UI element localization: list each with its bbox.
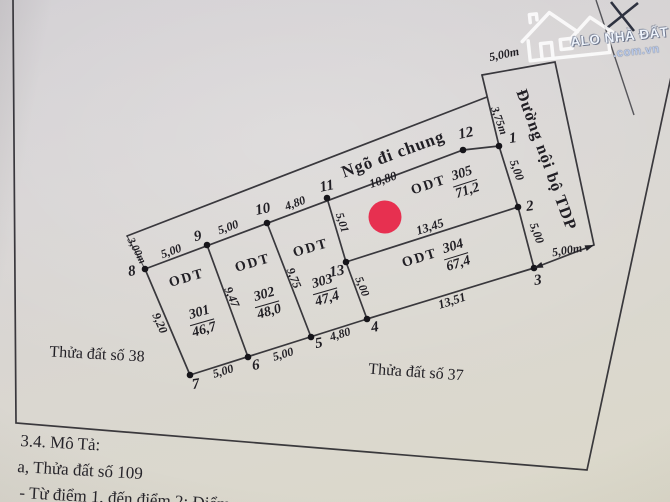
point-12-label: 12	[457, 125, 475, 143]
point-10-label: 10	[254, 201, 272, 219]
point-4-label: 4	[370, 320, 380, 336]
point-6-label: 6	[251, 358, 261, 374]
pen-x-mark	[607, 2, 638, 31]
point-3-label: 3	[533, 273, 543, 289]
survey-point-dots	[142, 143, 538, 379]
alley-upper-edge	[127, 97, 487, 236]
point-5-label: 5	[314, 336, 324, 352]
map-frame-border	[13, 0, 670, 470]
page-edge-line	[596, 0, 634, 115]
point-8-label: 8	[127, 264, 137, 280]
point-7-label: 7	[191, 377, 201, 393]
point-11-label: 11	[319, 178, 336, 196]
cadastral-sketch-photo: Ngõ đi chung Đường nội bộ TDP Thửa đất s…	[0, 0, 670, 502]
point-2-label: 2	[525, 199, 535, 215]
location-marker-dot	[369, 201, 402, 234]
